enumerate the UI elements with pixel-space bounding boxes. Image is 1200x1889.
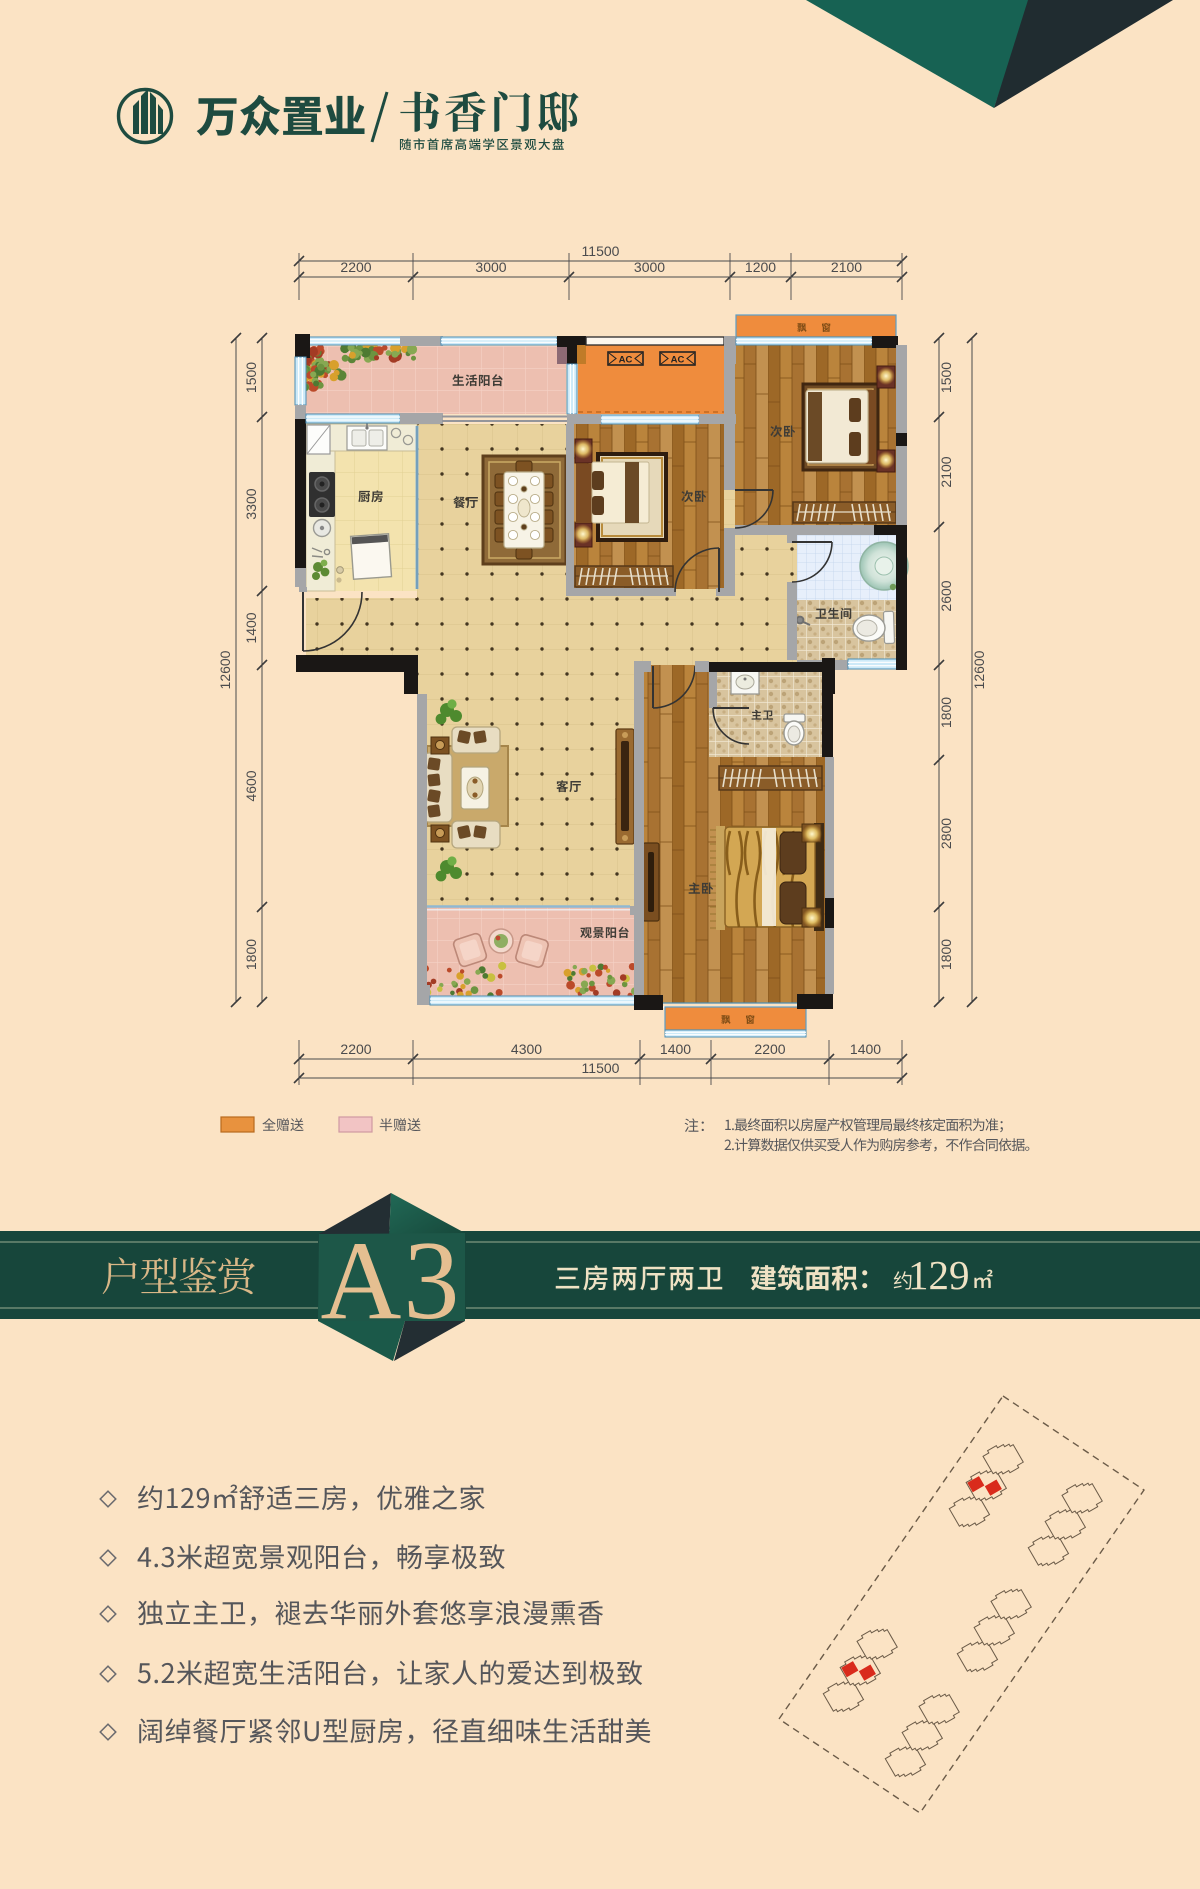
svg-text:3000: 3000 bbox=[634, 259, 665, 275]
svg-text:1200: 1200 bbox=[745, 259, 776, 275]
svg-text:2200: 2200 bbox=[754, 1041, 785, 1057]
svg-text:2600: 2600 bbox=[938, 580, 954, 611]
svg-text:2200: 2200 bbox=[340, 1041, 371, 1057]
svg-text:2100: 2100 bbox=[938, 456, 954, 487]
svg-text:3300: 3300 bbox=[243, 488, 259, 519]
svg-text:A3: A3 bbox=[321, 1219, 462, 1343]
svg-text:1800: 1800 bbox=[938, 697, 954, 728]
svg-text:129: 129 bbox=[908, 1252, 970, 1298]
svg-text:11500: 11500 bbox=[582, 243, 620, 259]
svg-text:4600: 4600 bbox=[243, 770, 259, 801]
svg-text:1800: 1800 bbox=[938, 939, 954, 970]
svg-text:1500: 1500 bbox=[938, 362, 954, 393]
svg-text:2100: 2100 bbox=[831, 259, 862, 275]
svg-text:1500: 1500 bbox=[243, 362, 259, 393]
svg-text:AC: AC bbox=[671, 355, 685, 366]
svg-text:3000: 3000 bbox=[475, 259, 506, 275]
svg-text:12600: 12600 bbox=[217, 650, 233, 689]
svg-text:12600: 12600 bbox=[971, 650, 987, 689]
svg-text:2200: 2200 bbox=[340, 259, 371, 275]
svg-text:1400: 1400 bbox=[243, 612, 259, 643]
svg-text:1400: 1400 bbox=[660, 1041, 691, 1057]
svg-text:1800: 1800 bbox=[243, 939, 259, 970]
svg-text:4300: 4300 bbox=[511, 1041, 542, 1057]
svg-text:2800: 2800 bbox=[938, 818, 954, 849]
svg-text:1400: 1400 bbox=[850, 1041, 881, 1057]
svg-text:AC: AC bbox=[619, 355, 633, 366]
svg-text:11500: 11500 bbox=[582, 1060, 620, 1076]
